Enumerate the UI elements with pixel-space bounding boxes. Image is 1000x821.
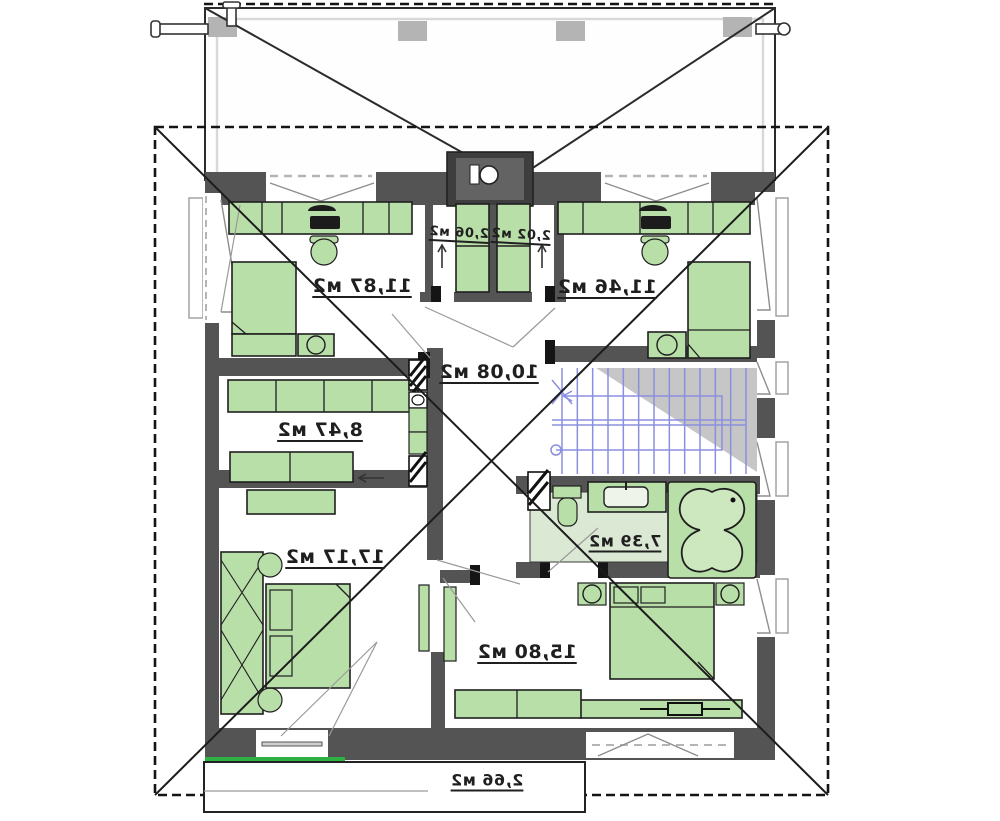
room-label-bathroom: 7,39 м2 — [589, 532, 662, 551]
chimney-icon — [447, 152, 533, 206]
sink-vanity-icon — [588, 482, 666, 512]
room-label-bedroom-bottom-right: 15,80 м2 — [477, 641, 576, 663]
nightstand-icon — [648, 332, 686, 358]
nightstand-icon — [298, 334, 334, 356]
bathtub-icon — [668, 482, 756, 578]
wardrobe-icon — [221, 552, 263, 714]
desk-chair-icon — [641, 236, 669, 265]
nightstand-icon — [258, 688, 282, 712]
tv-stand-icon — [580, 700, 742, 718]
pillow-icon — [641, 587, 665, 603]
room-label-balcony: 2,66 м2 — [451, 771, 524, 790]
room-label-closet-right: 2,02 м2 — [491, 226, 551, 244]
shaft-hatch-icon — [409, 356, 427, 396]
desk-chair-icon — [310, 236, 338, 265]
door-leaf — [419, 585, 429, 651]
laptop-icon — [310, 216, 340, 229]
laptop-icon — [641, 216, 671, 229]
balcony-outline — [204, 762, 585, 812]
pillow-icon — [270, 590, 292, 630]
dresser-icon — [247, 490, 335, 514]
bathroom-fixtures — [528, 470, 757, 578]
floor-plan-drawing — [0, 0, 1000, 821]
shaft-hatch-icon — [528, 470, 550, 510]
tall-cabinet-icon — [444, 587, 456, 661]
room-label-bedroom-top-left: 11,87 м2 — [312, 275, 411, 297]
nightstand-icon — [716, 583, 744, 605]
wardrobe-icon — [455, 690, 581, 718]
room-label-wardrobe-room: 8,47 м2 — [277, 419, 363, 441]
nightstand-icon — [258, 553, 282, 577]
room-label-bedroom-top-right: 11,46 м2 — [557, 276, 656, 298]
bed-chest-icon — [232, 334, 296, 356]
stairs-icon — [548, 366, 757, 476]
room-label-hall: 10,08 м2 — [439, 361, 538, 383]
bedroom-bottom-left-furniture — [221, 490, 429, 714]
room-label-bedroom-bottom-left: 17,17 м2 — [285, 546, 384, 568]
bed-icon — [688, 262, 750, 358]
room-label-closet-left: 2,06 м2 — [429, 224, 489, 242]
nightstand-icon — [578, 583, 606, 605]
floor-plan-canvas: 11,87 м2 11,46 м2 2,06 м2 2,02 м2 10,08 … — [0, 0, 1000, 821]
shaft-hatch-icon — [409, 452, 427, 486]
bed-icon — [232, 262, 296, 334]
